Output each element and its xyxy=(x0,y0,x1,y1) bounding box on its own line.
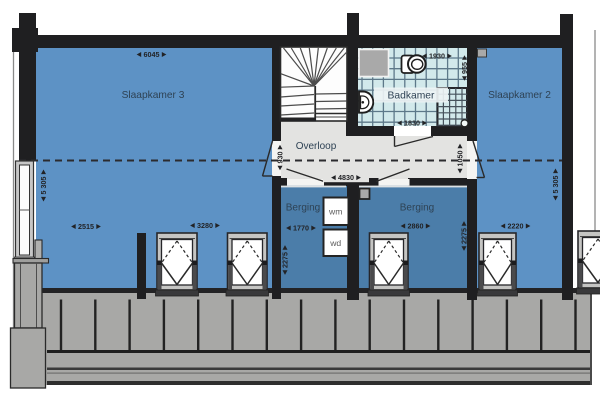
svg-text:wd: wd xyxy=(329,238,341,248)
svg-text:Slaapkamer 2: Slaapkamer 2 xyxy=(488,90,551,101)
svg-text:930: 930 xyxy=(276,152,285,164)
svg-text:6045: 6045 xyxy=(144,50,160,59)
svg-text:wm: wm xyxy=(328,207,342,217)
svg-text:Berging: Berging xyxy=(400,203,434,214)
svg-text:Badkamer: Badkamer xyxy=(388,91,436,102)
svg-text:1770: 1770 xyxy=(293,224,309,233)
svg-text:2220: 2220 xyxy=(508,222,524,231)
svg-text:955: 955 xyxy=(460,62,469,74)
svg-text:1050: 1050 xyxy=(456,151,465,167)
svg-text:Slaapkamer 3: Slaapkamer 3 xyxy=(122,90,185,101)
svg-text:4830: 4830 xyxy=(338,173,354,182)
svg-text:Overloop: Overloop xyxy=(296,141,337,152)
svg-text:2860: 2860 xyxy=(408,222,424,231)
svg-text:3280: 3280 xyxy=(197,221,213,230)
svg-text:1830: 1830 xyxy=(404,119,420,128)
svg-text:5 305: 5 305 xyxy=(39,177,48,195)
svg-text:2275: 2275 xyxy=(281,252,290,268)
svg-text:1930: 1930 xyxy=(429,52,445,61)
svg-text:5 305: 5 305 xyxy=(551,176,560,194)
svg-text:Berging: Berging xyxy=(286,203,320,214)
svg-text:2515: 2515 xyxy=(78,222,94,231)
svg-text:2275: 2275 xyxy=(460,228,469,244)
